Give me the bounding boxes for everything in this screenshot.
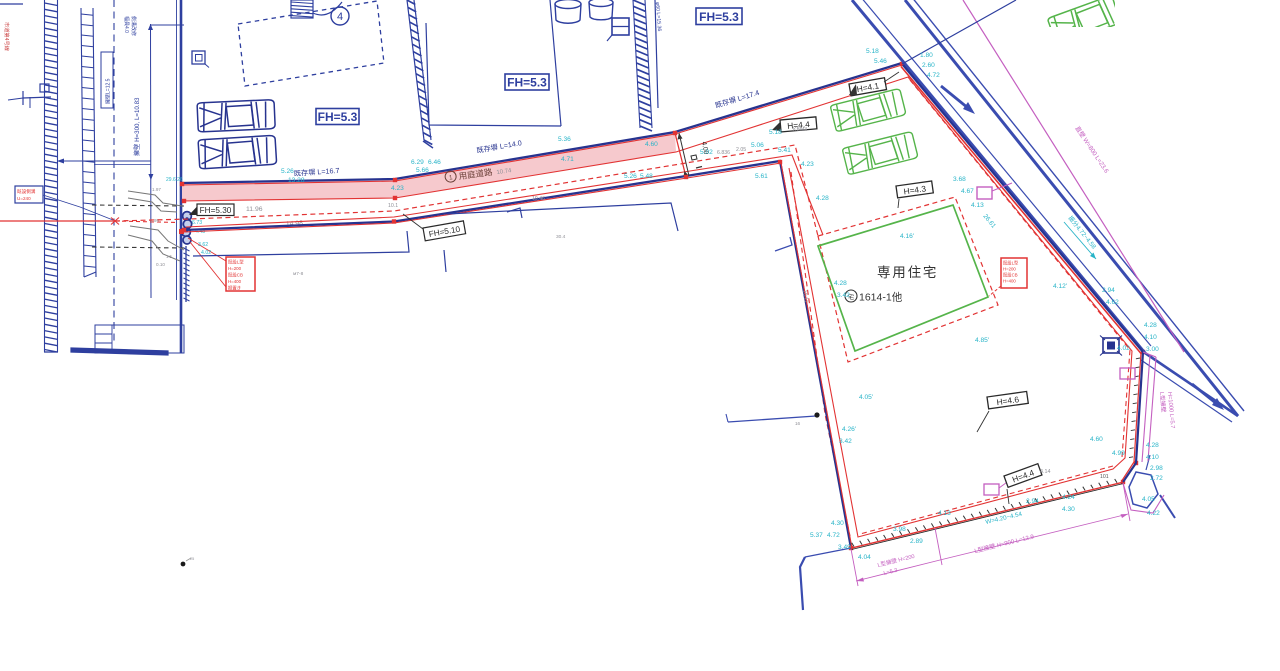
svg-text:6.836: 6.836 [717, 150, 730, 156]
svg-text:1.80: 1.80 [920, 52, 933, 59]
svg-text:4.30: 4.30 [1062, 506, 1075, 513]
svg-text:4.28: 4.28 [1146, 442, 1159, 449]
svg-text:2.05: 2.05 [736, 147, 746, 153]
svg-text:既設CB: 既設CB [228, 272, 243, 279]
svg-text:6.46: 6.46 [428, 159, 441, 166]
svg-text:既存塀 L=17.4: 既存塀 L=17.4 [714, 88, 760, 110]
svg-text:FH=5.3: FH=5.3 [699, 10, 739, 24]
svg-text:4.62: 4.62 [1106, 299, 1119, 306]
svg-text:5.02: 5.02 [700, 149, 713, 156]
svg-text:4.23: 4.23 [801, 161, 814, 168]
svg-text:5.48: 5.48 [640, 173, 653, 180]
svg-text:4.10: 4.10 [1144, 334, 1157, 341]
svg-text:H=200: H=200 [228, 266, 242, 271]
svg-text:4.72: 4.72 [827, 532, 840, 539]
svg-text:4.26': 4.26' [842, 426, 856, 433]
svg-text:4.04: 4.04 [858, 554, 871, 561]
svg-text:FH=5.3: FH=5.3 [318, 110, 358, 124]
svg-text:1.5: 1.5 [166, 254, 172, 259]
svg-text:4.85': 4.85' [975, 337, 989, 344]
svg-text:H=400: H=400 [1003, 279, 1016, 284]
svg-text:4.28: 4.28 [816, 195, 829, 202]
svg-text:5.46: 5.46 [874, 58, 887, 65]
svg-text:H=400: H=400 [228, 279, 242, 284]
svg-text:5.41: 5.41 [778, 147, 791, 154]
svg-text:5.06: 5.06 [751, 142, 764, 149]
svg-text:4.23: 4.23 [391, 185, 404, 192]
svg-text:既設L型: 既設L型 [1003, 260, 1019, 267]
svg-text:5.18: 5.18 [769, 129, 782, 136]
svg-text:FH=5.30: FH=5.30 [200, 206, 232, 215]
svg-text:H=200: H=200 [1003, 267, 1016, 272]
svg-text:既存塀 L=14.0: 既存塀 L=14.0 [476, 138, 523, 155]
svg-text:4.05: 4.05 [1142, 496, 1155, 503]
svg-text:2.94: 2.94 [1026, 498, 1039, 505]
svg-text:専用住宅: 専用住宅 [877, 265, 938, 280]
svg-text:3.98: 3.98 [893, 526, 906, 533]
svg-text:4.60: 4.60 [1090, 436, 1103, 443]
svg-text:5.36: 5.36 [558, 136, 571, 143]
svg-text:FH=5.3: FH=5.3 [507, 76, 547, 90]
svg-text:3.49: 3.49 [838, 544, 851, 551]
svg-text:U=240: U=240 [17, 196, 31, 201]
svg-text:市道第4号線: 市道第4号線 [3, 22, 11, 51]
svg-text:6.73: 6.73 [192, 220, 202, 226]
svg-text:5.26: 5.26 [624, 173, 637, 180]
svg-text:5.26: 5.26 [281, 168, 294, 175]
svg-text:L型擁壁 H=900 L=12.9: L型擁壁 H=900 L=12.9 [974, 532, 1036, 555]
svg-text:既設L型: 既設L型 [228, 259, 244, 266]
svg-text:2.98: 2.98 [1150, 465, 1163, 472]
svg-text:6.29: 6.29 [411, 159, 424, 166]
svg-text:25: 25 [190, 557, 194, 561]
svg-text:4.10: 4.10 [1146, 454, 1159, 461]
svg-text:4.02: 4.02 [1117, 345, 1130, 352]
svg-text:4.28: 4.28 [834, 280, 847, 287]
svg-text:10.1: 10.1 [388, 203, 398, 209]
svg-text:2.89: 2.89 [910, 538, 923, 545]
svg-text:3.42: 3.42 [839, 438, 852, 445]
svg-text:3.68: 3.68 [953, 176, 966, 183]
svg-text:4.67: 4.67 [961, 188, 974, 195]
svg-text:5.66: 5.66 [416, 167, 429, 174]
svg-text:4.22: 4.22 [1147, 510, 1160, 517]
svg-text:据置き: 据置き [228, 285, 241, 292]
svg-text:2.94: 2.94 [1102, 287, 1115, 294]
svg-text:4.24: 4.24 [1062, 494, 1075, 501]
svg-text:16: 16 [795, 421, 801, 426]
svg-text:L型擁壁 H=200: L型擁壁 H=200 [877, 552, 916, 569]
svg-text:4.05': 4.05' [859, 394, 873, 401]
svg-text:側溝改修: 側溝改修 [130, 16, 137, 36]
svg-text:KBM4: KBM4 [793, 127, 807, 133]
svg-text:4.13: 4.13 [971, 202, 984, 209]
svg-text:4.72: 4.72 [927, 72, 940, 79]
svg-text:3.62: 3.62 [198, 242, 208, 248]
svg-text:0.10: 0.10 [156, 262, 165, 267]
svg-text:2.72: 2.72 [1150, 475, 1163, 482]
svg-text:3.42: 3.42 [837, 292, 850, 299]
svg-text:既設側溝: 既設側溝 [17, 188, 36, 195]
svg-text:10.11: 10.11 [801, 289, 809, 303]
svg-text:4.28: 4.28 [1144, 322, 1157, 329]
svg-text:L=5.3: L=5.3 [883, 568, 898, 577]
svg-text:19.46: 19.46 [532, 196, 545, 202]
svg-text:м7-8: м7-8 [293, 271, 304, 277]
svg-text:13.28: 13.28 [288, 177, 305, 184]
svg-text:5.37: 5.37 [810, 532, 823, 539]
svg-text:4.71: 4.71 [561, 156, 574, 163]
svg-text:4.30: 4.30 [831, 520, 844, 527]
svg-text:3.00: 3.00 [1146, 346, 1159, 353]
svg-text:5.61: 5.61 [755, 173, 768, 180]
svg-text:2.60: 2.60 [922, 62, 935, 69]
svg-text:H=1000 L=5.7: H=1000 L=5.7 [1166, 392, 1175, 429]
svg-text:30.4: 30.4 [556, 234, 566, 240]
svg-text:既設CB: 既設CB [1003, 272, 1018, 279]
svg-text:4.12': 4.12' [1053, 283, 1067, 290]
svg-text:101: 101 [1100, 474, 1109, 480]
svg-text:直壁 W=800 L=23.6: 直壁 W=800 L=23.6 [1073, 125, 1111, 175]
svg-text:4.13: 4.13 [938, 510, 951, 517]
svg-text:1.97: 1.97 [152, 187, 161, 192]
svg-text:4.14: 4.14 [1040, 469, 1051, 475]
svg-text:5.18: 5.18 [866, 48, 879, 55]
svg-text:26.61: 26.61 [981, 213, 997, 230]
svg-text:4: 4 [337, 11, 343, 23]
svg-text:4.60: 4.60 [645, 141, 658, 148]
svg-text:4.16': 4.16' [900, 233, 914, 240]
svg-text:1614-1他: 1614-1他 [859, 291, 903, 304]
svg-text:擁壁L=12.5: 擁壁L=12.5 [105, 78, 112, 104]
svg-text:幅員4.0: 幅員4.0 [123, 16, 130, 33]
svg-text:擁壁 H=300, L=10.83: 擁壁 H=300, L=10.83 [133, 97, 141, 156]
svg-text:4.99: 4.99 [1112, 450, 1125, 457]
svg-text:11.96: 11.96 [246, 206, 263, 213]
